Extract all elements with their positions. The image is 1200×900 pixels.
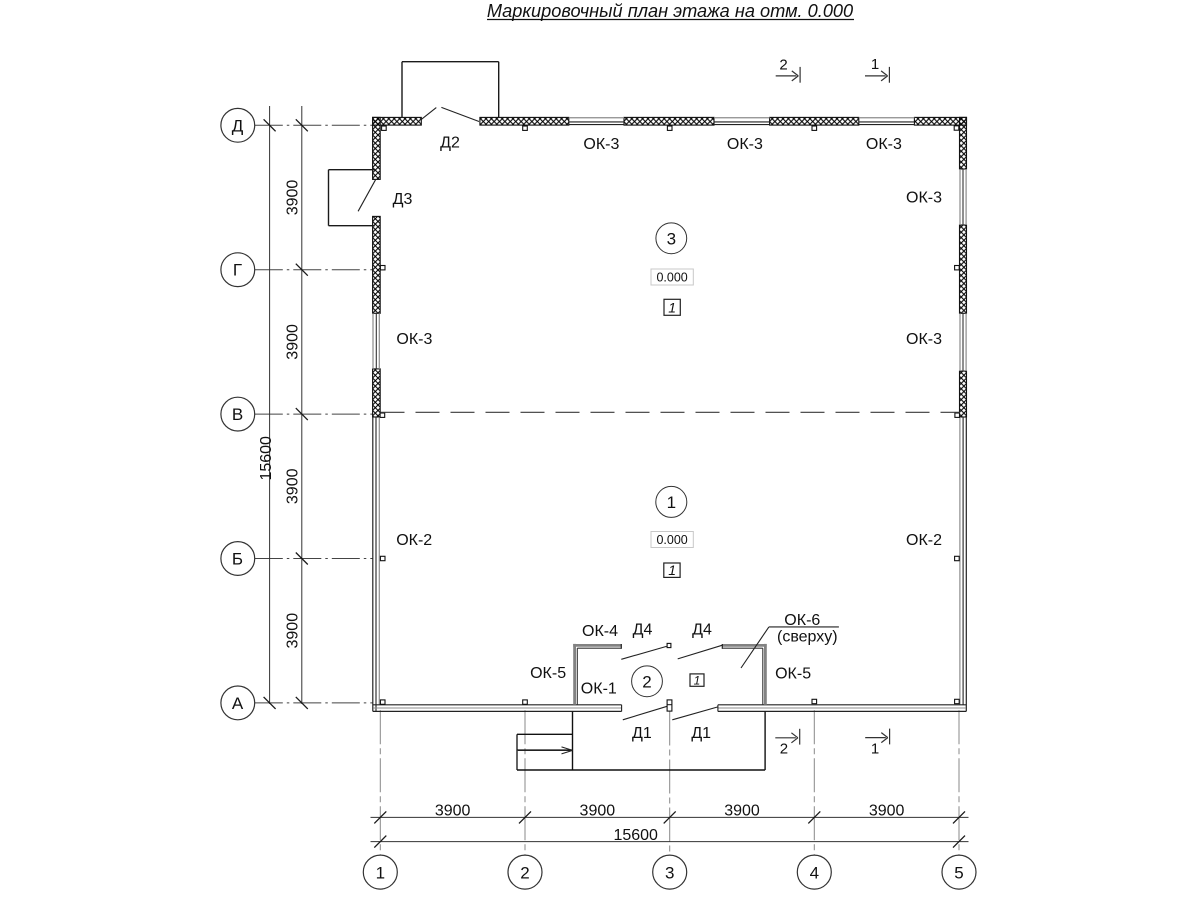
svg-text:3900: 3900 bbox=[580, 802, 616, 819]
svg-text:2: 2 bbox=[780, 740, 788, 757]
svg-text:ОК-3: ОК-3 bbox=[396, 331, 432, 348]
svg-text:Д2: Д2 bbox=[440, 135, 460, 152]
svg-text:Д3: Д3 bbox=[393, 191, 413, 208]
svg-text:4: 4 bbox=[810, 863, 819, 882]
svg-text:Д4: Д4 bbox=[633, 622, 653, 639]
svg-text:3900: 3900 bbox=[285, 324, 302, 360]
svg-text:Маркировочный план этажа на от: Маркировочный план этажа на отм. 0.000 bbox=[487, 1, 853, 21]
svg-text:Д1: Д1 bbox=[691, 725, 711, 742]
svg-text:3900: 3900 bbox=[285, 613, 302, 649]
svg-text:3900: 3900 bbox=[285, 468, 302, 504]
svg-text:ОК-3: ОК-3 bbox=[583, 136, 619, 153]
svg-text:1: 1 bbox=[871, 56, 879, 73]
svg-text:3: 3 bbox=[665, 863, 674, 882]
svg-text:3900: 3900 bbox=[869, 802, 905, 819]
svg-text:1: 1 bbox=[376, 863, 385, 882]
svg-text:1: 1 bbox=[668, 299, 676, 315]
svg-text:15600: 15600 bbox=[613, 827, 658, 844]
svg-text:3: 3 bbox=[667, 229, 676, 248]
svg-text:1: 1 bbox=[668, 562, 676, 578]
svg-text:0.000: 0.000 bbox=[656, 533, 687, 547]
svg-text:0.000: 0.000 bbox=[656, 271, 687, 285]
svg-text:Б: Б bbox=[232, 550, 243, 569]
svg-text:15600: 15600 bbox=[258, 436, 275, 481]
svg-text:ОК-3: ОК-3 bbox=[906, 331, 942, 348]
svg-text:ОК-3: ОК-3 bbox=[866, 136, 902, 153]
svg-text:ОК-3: ОК-3 bbox=[906, 189, 942, 206]
svg-text:3900: 3900 bbox=[285, 180, 302, 216]
svg-text:ОК-2: ОК-2 bbox=[396, 532, 432, 549]
svg-text:(сверху): (сверху) bbox=[777, 629, 838, 646]
svg-text:ОК-5: ОК-5 bbox=[530, 665, 566, 682]
svg-text:Д: Д bbox=[232, 116, 244, 135]
svg-text:1: 1 bbox=[694, 673, 701, 687]
svg-text:Г: Г bbox=[233, 261, 242, 280]
svg-text:2: 2 bbox=[520, 863, 529, 882]
svg-text:А: А bbox=[232, 694, 244, 713]
svg-text:Д4: Д4 bbox=[692, 622, 712, 639]
svg-text:5: 5 bbox=[954, 863, 963, 882]
svg-text:ОК-4: ОК-4 bbox=[582, 623, 618, 640]
svg-text:2: 2 bbox=[779, 56, 787, 73]
svg-text:1: 1 bbox=[667, 493, 676, 512]
svg-text:2: 2 bbox=[642, 672, 651, 691]
svg-text:3900: 3900 bbox=[435, 802, 471, 819]
svg-text:ОК-5: ОК-5 bbox=[775, 666, 811, 683]
svg-text:ОК-1: ОК-1 bbox=[581, 681, 617, 698]
svg-text:ОК-3: ОК-3 bbox=[727, 136, 763, 153]
svg-text:3900: 3900 bbox=[724, 802, 760, 819]
svg-text:ОК-2: ОК-2 bbox=[906, 532, 942, 549]
svg-text:Д1: Д1 bbox=[632, 725, 652, 742]
svg-text:В: В bbox=[232, 405, 243, 424]
svg-text:1: 1 bbox=[871, 741, 879, 758]
